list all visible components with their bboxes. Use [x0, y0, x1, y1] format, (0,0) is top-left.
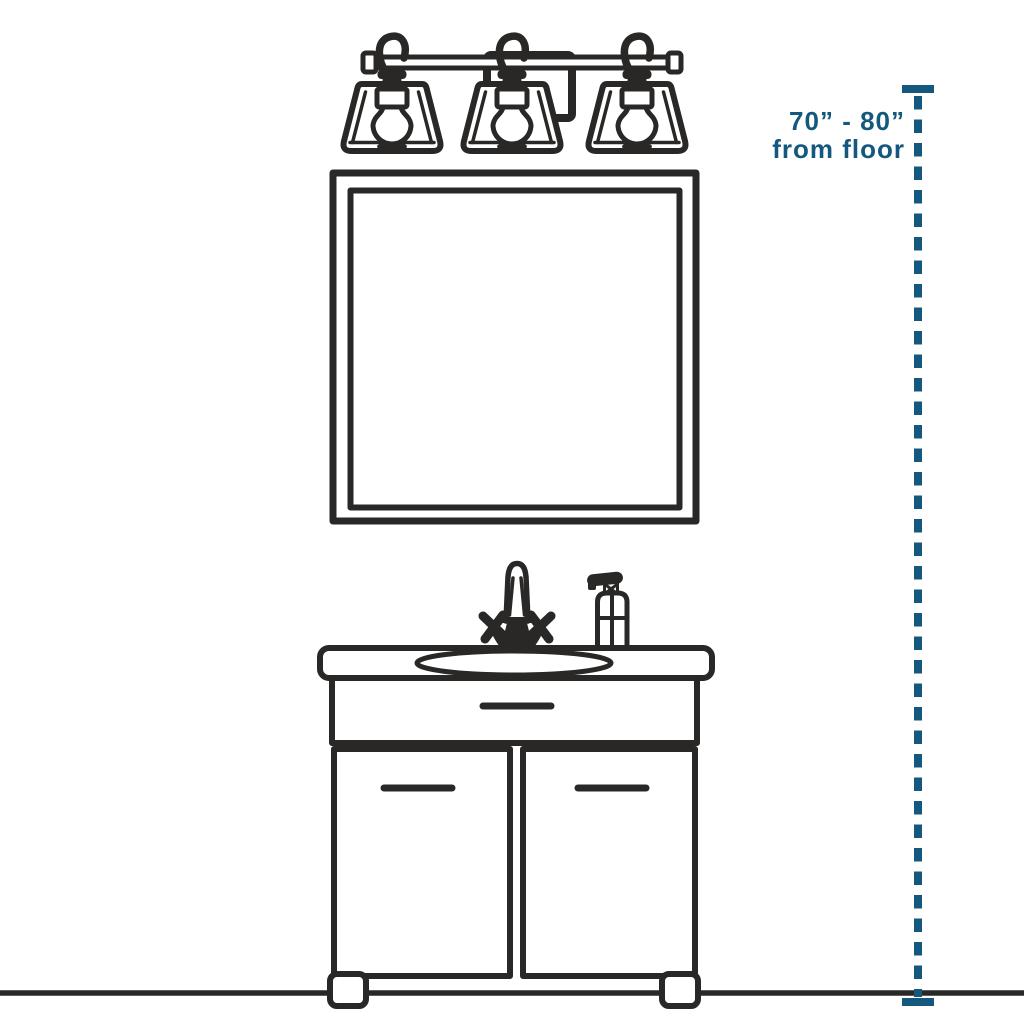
mirror-inner-frame: [351, 191, 680, 508]
faucet-icon: [483, 564, 551, 653]
fixture-bar-left-cap: [363, 53, 376, 72]
vanity-foot-left: [330, 974, 366, 1006]
bathroom-vanity-cabinet-icon: [320, 564, 712, 1007]
dimension-label-line2: from floor: [772, 134, 905, 164]
wall-mirror-icon: [333, 173, 696, 521]
vanity-drawer: [332, 678, 697, 743]
cabinet-door-left: [334, 749, 510, 976]
pump-nozzle: [588, 581, 596, 590]
vanity-lamp-left: [344, 36, 441, 151]
soap-dispenser-icon: [586, 571, 627, 651]
three-light-vanity-fixture-icon: [344, 36, 686, 151]
height-dimension-line: 70” - 80” from floor: [772, 89, 934, 1002]
vanity-foot-right: [662, 974, 698, 1006]
sink-basin-icon: [417, 651, 611, 675]
installation-diagram: 70” - 80” from floor: [0, 0, 1024, 1024]
dimension-label-line1: 70” - 80”: [789, 106, 905, 136]
diagram-canvas: 70” - 80” from floor: [0, 0, 1024, 1024]
fixture-bar-right-cap: [668, 53, 681, 72]
cabinet-door-right: [523, 749, 695, 976]
